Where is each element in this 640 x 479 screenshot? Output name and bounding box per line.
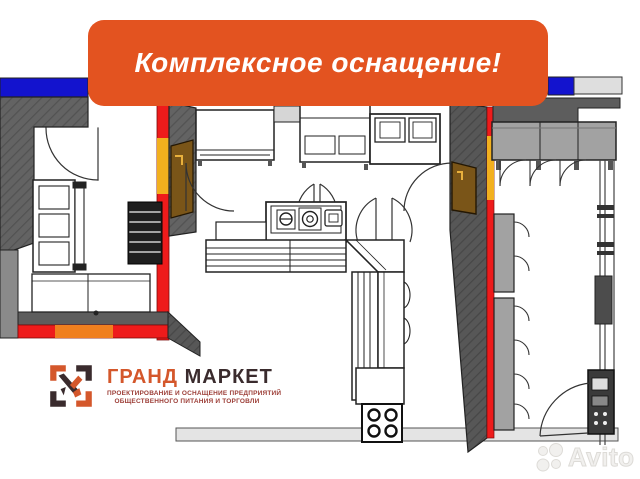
wall-corner-wedge xyxy=(168,312,200,356)
logo-subtitle: ПРОЕКТИРОВАНИЕ И ОСНАЩЕНИЕ ПРЕДПРИЯТИЙ О… xyxy=(107,390,267,406)
door-swing-arc xyxy=(46,128,98,180)
logo-title: ГРАНД МАРКЕТ xyxy=(107,366,267,388)
avito-dots-icon xyxy=(534,443,564,473)
left-room xyxy=(0,78,200,356)
wire-rack xyxy=(128,202,162,264)
cabinet-door-arcs-top xyxy=(500,160,586,186)
wall-yellow-segment xyxy=(157,138,169,194)
wall-bottom-gray xyxy=(18,312,168,325)
shelf-rack xyxy=(33,180,86,272)
avito-watermark: Avito xyxy=(534,442,635,473)
top-counter-row xyxy=(196,104,440,170)
wall-bottom-orange-segment xyxy=(55,325,113,338)
island-vertical-run xyxy=(352,272,410,404)
right-room-oven xyxy=(540,370,614,436)
logo-title-word1: ГРАНД xyxy=(107,366,178,388)
grand-market-frame-check-icon xyxy=(45,360,97,412)
wall-light-strip-right xyxy=(574,77,622,94)
promo-banner-label: Комплексное оснащение! xyxy=(135,47,502,79)
listing-photo: Комплексное оснащение! ГРАНД МАРКЕТ ПРОЕ… xyxy=(0,0,640,479)
wall-left-lower xyxy=(0,250,18,338)
promo-banner: Комплексное оснащение! xyxy=(88,20,548,106)
door-brown-divider xyxy=(452,162,476,214)
logo-title-word2: МАРКЕТ xyxy=(185,366,273,388)
wall-blue-strip-left xyxy=(0,78,88,97)
right-room-left-cabinets xyxy=(494,214,529,430)
avito-watermark-label: Avito xyxy=(568,442,635,473)
door-brown-left xyxy=(171,140,193,218)
logo-text-block: ГРАНД МАРКЕТ ПРОЕКТИРОВАНИЕ И ОСНАЩЕНИЕ … xyxy=(107,360,267,406)
wall-blue-strip-right xyxy=(548,77,574,95)
logo-subtitle-line2: ОБЩЕСТВЕННОГО ПИТАНИЯ И ТОРГОВЛИ xyxy=(107,398,267,406)
right-room xyxy=(492,77,622,445)
logo-subtitle-line1: ПРОЕКТИРОВАНИЕ И ОСНАЩЕНИЕ ПРЕДПРИЯТИЙ xyxy=(107,390,267,398)
right-room-counters xyxy=(492,122,616,170)
stove-four-burners xyxy=(362,404,402,442)
bottom-counters xyxy=(32,274,150,316)
dividing-wall xyxy=(450,102,494,452)
company-logo: ГРАНД МАРКЕТ ПРОЕКТИРОВАНИЕ И ОСНАЩЕНИЕ … xyxy=(45,360,267,412)
island-appliance-counter xyxy=(266,202,346,242)
